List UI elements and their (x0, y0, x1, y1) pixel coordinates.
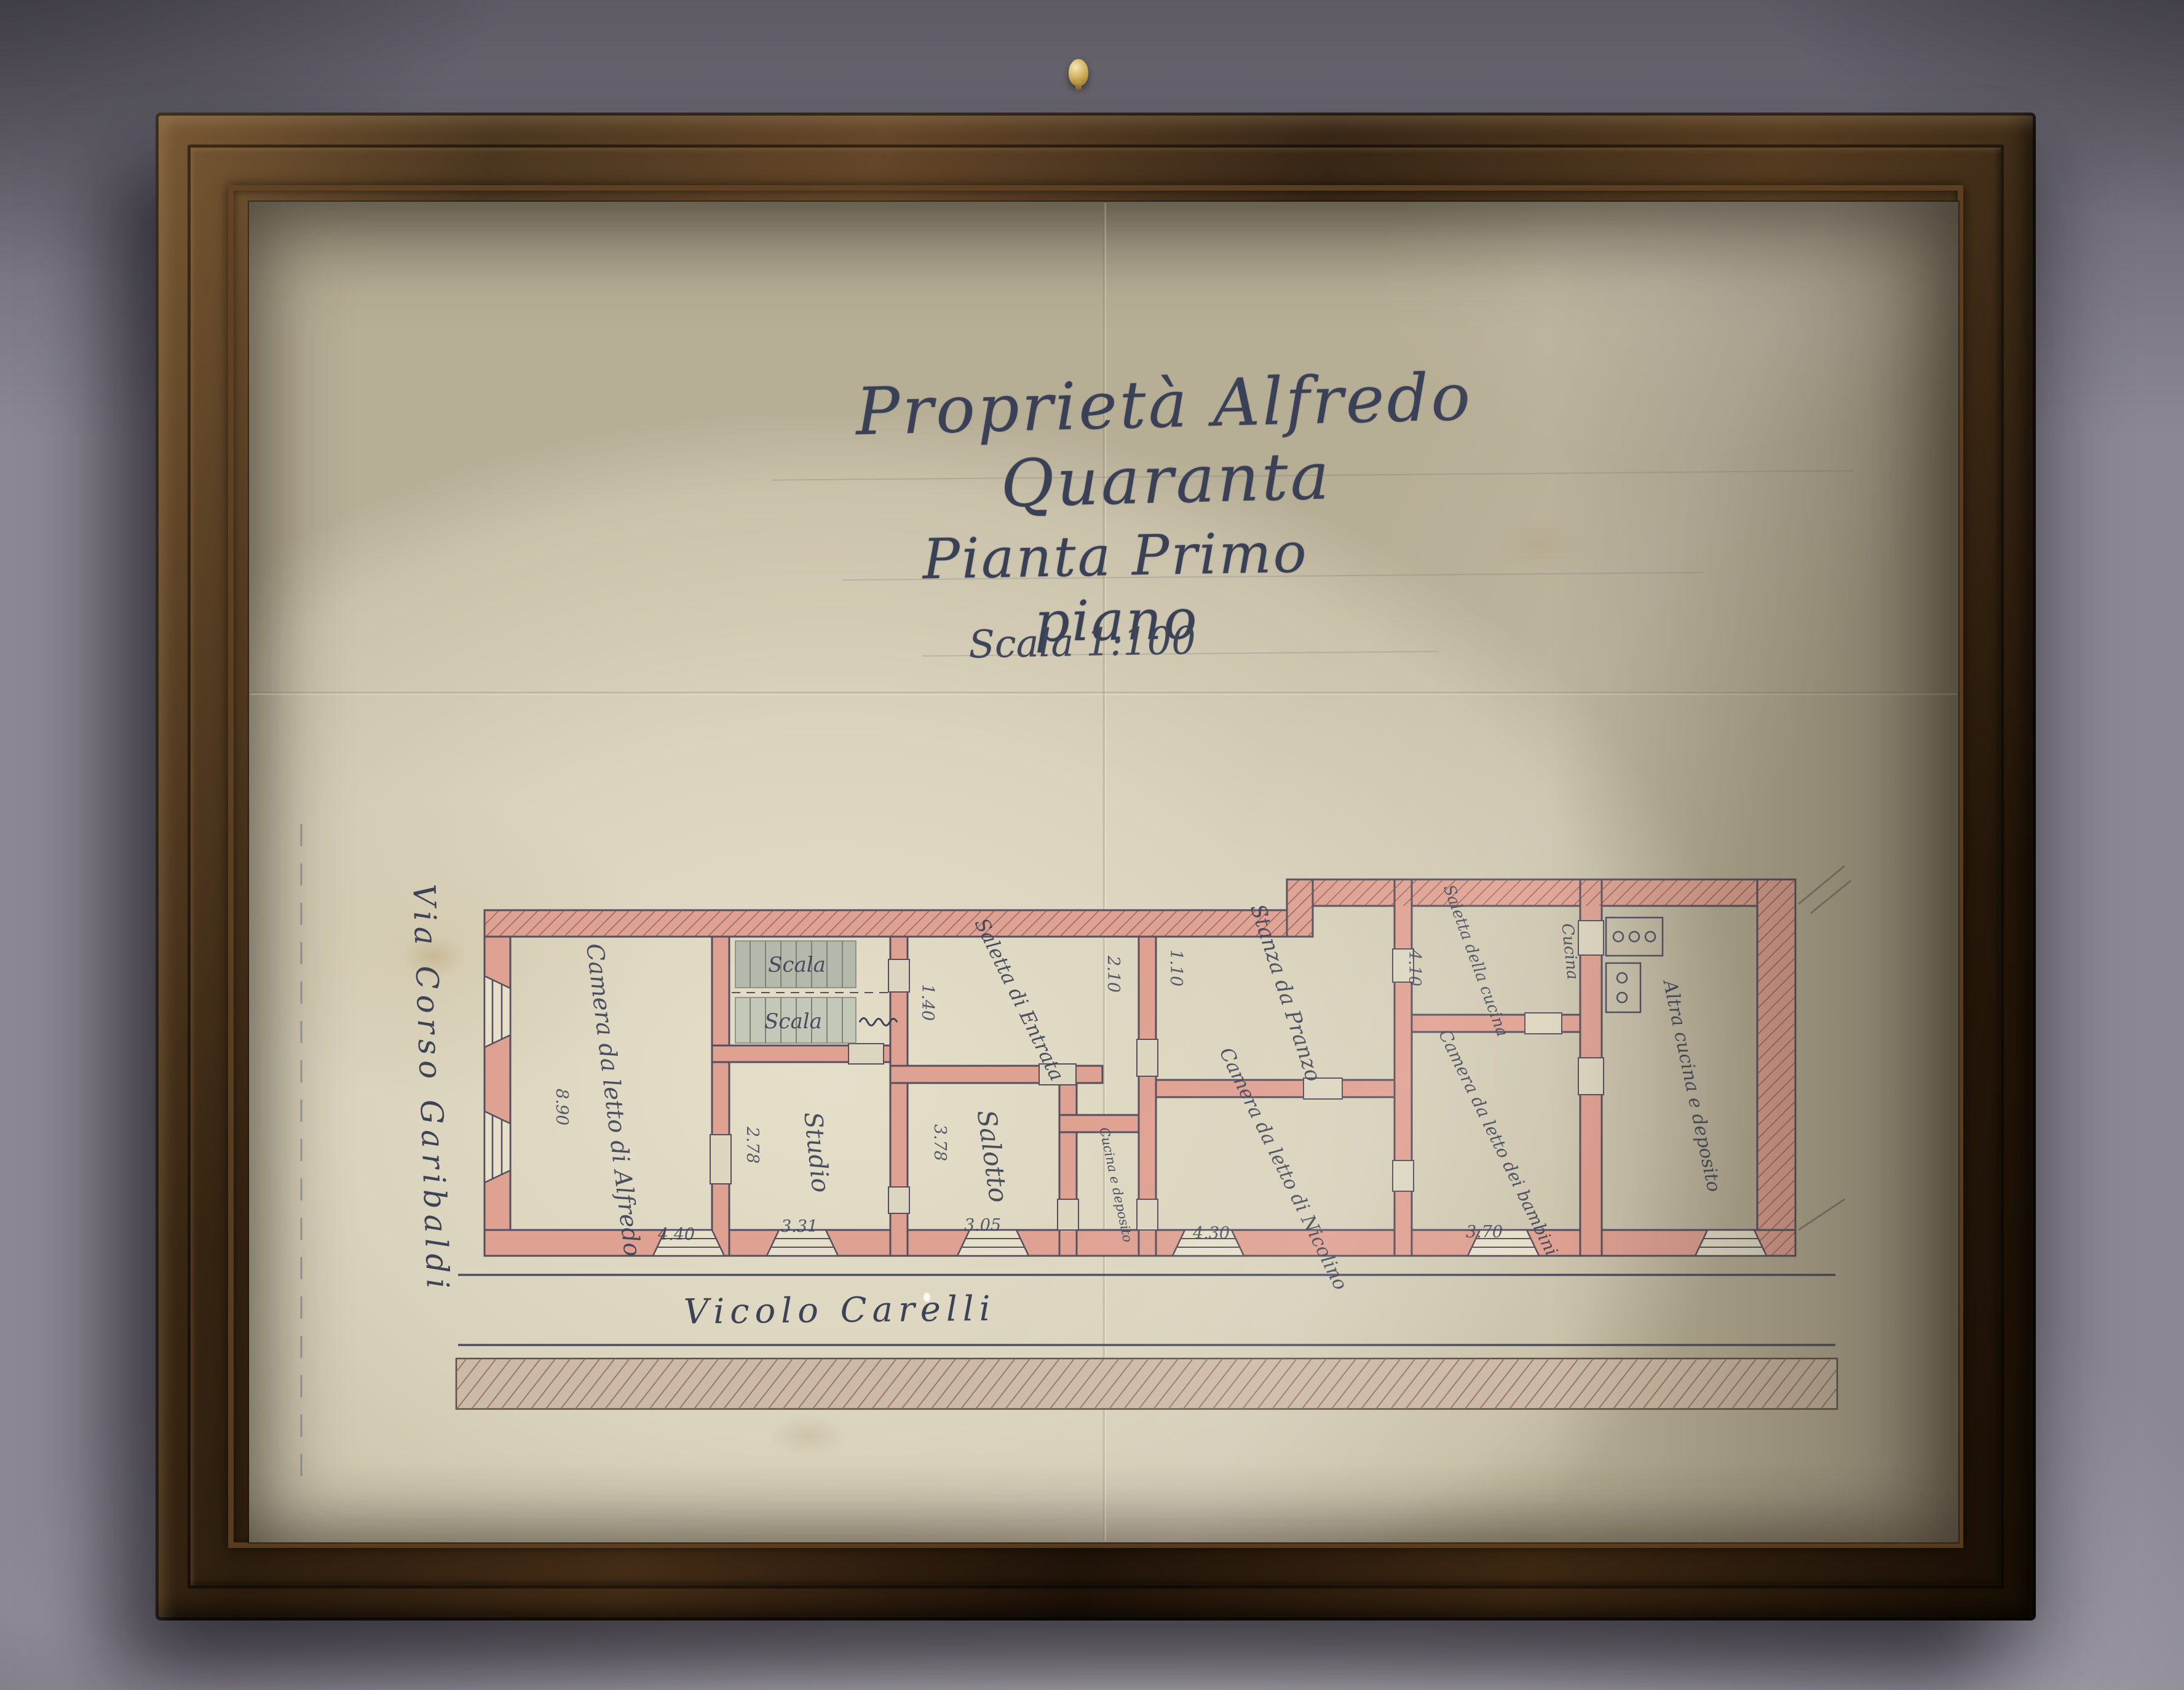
room-label-scala-lower: Scala (764, 1009, 822, 1034)
glass-glare-speck (924, 1293, 930, 1302)
dim-nicolino-width: 4.30 (1192, 1224, 1230, 1243)
hanging-pin-icon (1069, 59, 1088, 86)
dim-studio-depth: 2.78 (743, 1126, 762, 1164)
dim-bambini-width: 3.70 (1466, 1223, 1503, 1242)
room-label-studio: Studio (798, 1111, 835, 1194)
room-label-altra-cucina: Altra cucina e deposito (1658, 977, 1725, 1194)
dim-salotto-width: 3.05 (964, 1216, 1001, 1235)
dim-alfredo-width: 4.40 (657, 1225, 695, 1244)
room-label-cucina-deposito: Cucina e deposito (1096, 1126, 1135, 1244)
room-label-salotto: Salotto (971, 1108, 1015, 1205)
dim-pranzo-depth: 2.10 (1104, 955, 1123, 993)
photo-scene: Proprietà Alfredo Quaranta Pianta Primo … (0, 0, 2184, 1690)
dim-pranzo-left: 1.10 (1166, 950, 1185, 986)
room-label-camera-alfredo: Camera da letto di Alfredo (581, 942, 646, 1258)
room-label-saletta-entrata: Saletta di Entrata (970, 914, 1069, 1085)
dim-alfredo-depth: 8.90 (552, 1089, 571, 1125)
street-band (456, 1275, 1837, 1409)
pencil-marks (1798, 866, 1851, 1230)
dim-pranzo-right: 4.10 (1405, 949, 1424, 986)
street-label-bottom: Vicolo Carelli (683, 1289, 995, 1332)
floor-plan-svg: Via Corso Garibaldi Vicolo Carelli Camer… (249, 202, 1958, 1542)
dim-salotto-depth: 3.78 (930, 1124, 949, 1161)
street-label-left: Via Corso Garibaldi (406, 883, 456, 1295)
stove-symbol (1606, 918, 1663, 1012)
dim-entrata-depth: 1.40 (918, 984, 937, 1021)
dim-studio-width: 3.31 (781, 1217, 818, 1236)
room-label-scala-upper: Scala (768, 953, 826, 977)
